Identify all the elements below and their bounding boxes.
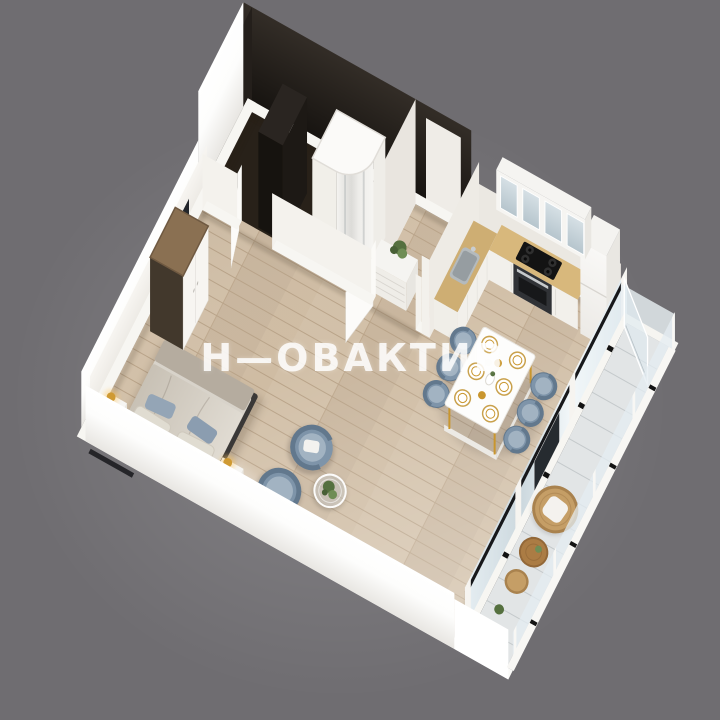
render-stage: Н—ОВАКТИВ (0, 0, 720, 720)
cabinet-seam (511, 264, 512, 290)
armchair-pillow (303, 439, 320, 454)
kitchen-partition-end (422, 255, 430, 337)
watermark-logo: Н—ОВАКТИВ (200, 336, 505, 380)
kitchen-partition-end (422, 255, 430, 337)
cabinet-seam (555, 289, 556, 315)
